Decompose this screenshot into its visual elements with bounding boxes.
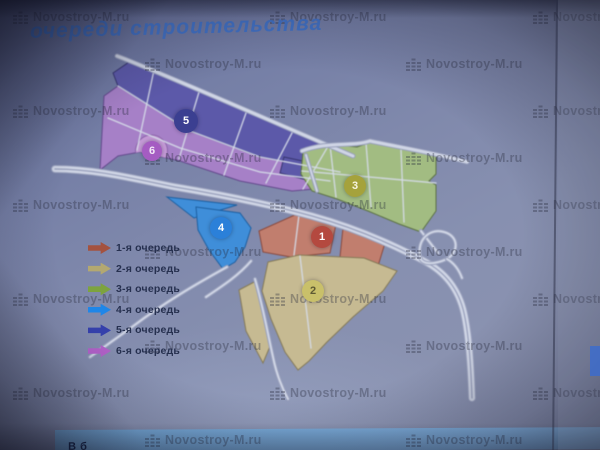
- legend-label: 5-я очередь: [116, 324, 180, 336]
- photo-of-screen: В б Novostroy-M.ruNovostroy-M.ruNovostro…: [0, 0, 600, 450]
- building-bars-icon: [406, 434, 422, 447]
- legend-item-2: 2-я очередь: [88, 263, 180, 275]
- phase-badge-3: 3: [344, 175, 366, 197]
- cutoff-text: В б: [68, 441, 87, 450]
- building-bars-icon: [406, 340, 422, 353]
- phase-arrow-icon: [88, 304, 111, 316]
- legend-item-6: 6-я очередь: [88, 345, 180, 357]
- watermark-text: Novostroy-M.ru: [290, 386, 387, 400]
- building-bars-icon: [270, 293, 286, 306]
- watermark: Novostroy-M.ru: [145, 57, 262, 71]
- phase-badge-5: 5: [174, 109, 198, 133]
- legend-item-1: 1-я очередь: [88, 242, 180, 254]
- watermark: Novostroy-M.ru: [270, 198, 387, 212]
- watermark: Novostroy-M.ru: [406, 339, 523, 353]
- building-bars-icon: [270, 387, 286, 400]
- building-bars-icon: [406, 152, 422, 165]
- phase-badge-1: 1: [311, 226, 333, 248]
- building-bars-icon: [145, 58, 161, 71]
- building-bars-icon: [533, 11, 549, 24]
- legend-item-5: 5-я очередь: [88, 324, 180, 336]
- building-bars-icon: [533, 293, 549, 306]
- watermark-text: Novostroy-M.ru: [426, 57, 523, 71]
- building-bars-icon: [13, 105, 29, 118]
- watermark: Novostroy-M.ru: [406, 245, 523, 259]
- watermark-text: Novostroy-M.ru: [290, 104, 387, 118]
- watermark-text: Novostroy-M.ru: [290, 198, 387, 212]
- legend: 1-я очередь2-я очередь3-я очередь4-я оче…: [88, 242, 180, 366]
- watermark-text: Novostroy-M.ru: [426, 151, 523, 165]
- watermark-text: Novostroy-M.ru: [33, 386, 130, 400]
- watermark-text: Novostroy-M.ru: [165, 433, 262, 447]
- legend-label: 1-я очередь: [116, 242, 180, 254]
- legend-label: 4-я очередь: [116, 304, 180, 316]
- watermark: Novostroy-M.ru: [406, 433, 523, 447]
- watermark: Novostroy-M.ru: [13, 386, 130, 400]
- watermark-text: Novostroy-M.ru: [165, 57, 262, 71]
- legend-label: 6-я очередь: [116, 345, 180, 357]
- watermark-text: Novostroy-M.ru: [426, 433, 523, 447]
- zone-phase-2: [262, 255, 397, 370]
- building-bars-icon: [13, 11, 29, 24]
- building-bars-icon: [406, 246, 422, 259]
- watermark-text: Novostroy-M.ru: [426, 245, 523, 259]
- watermark: Novostroy-M.ru: [406, 151, 523, 165]
- building-bars-icon: [533, 105, 549, 118]
- watermark-text: Novostroy-M.ru: [33, 104, 130, 118]
- phase-arrow-icon: [88, 242, 111, 254]
- watermark: Novostroy-M.ru: [270, 292, 387, 306]
- watermark: Novostroy-M.ru: [145, 433, 262, 447]
- building-bars-icon: [270, 105, 286, 118]
- building-bars-icon: [406, 58, 422, 71]
- phase-badge-6: 6: [142, 141, 162, 161]
- legend-item-4: 4-я очередь: [88, 304, 180, 316]
- phase-arrow-icon: [88, 324, 111, 336]
- watermark: Novostroy-M.ru: [270, 104, 387, 118]
- phase-arrow-icon: [88, 345, 111, 357]
- building-bars-icon: [533, 387, 549, 400]
- phase-badge-2: 2: [302, 280, 324, 302]
- building-bars-icon: [13, 387, 29, 400]
- watermark-text: Novostroy-M.ru: [165, 151, 262, 165]
- building-bars-icon: [13, 293, 29, 306]
- screen-edge-area: [558, 0, 600, 450]
- watermark-text: Novostroy-M.ru: [426, 339, 523, 353]
- phase-arrow-icon: [88, 283, 111, 295]
- watermark: Novostroy-M.ru: [406, 57, 523, 71]
- legend-item-3: 3-я очередь: [88, 283, 180, 295]
- phase-badge-4: 4: [210, 217, 232, 239]
- background-object: [590, 346, 600, 376]
- building-bars-icon: [533, 199, 549, 212]
- watermark: Novostroy-M.ru: [145, 151, 262, 165]
- watermark: Novostroy-M.ru: [13, 104, 130, 118]
- building-bars-icon: [13, 199, 29, 212]
- legend-label: 2-я очередь: [116, 263, 180, 275]
- watermark-text: Novostroy-M.ru: [33, 198, 130, 212]
- building-bars-icon: [145, 434, 161, 447]
- phase-arrow-icon: [88, 263, 111, 275]
- watermark: Novostroy-M.ru: [13, 198, 130, 212]
- legend-label: 3-я очередь: [116, 283, 180, 295]
- watermark: Novostroy-M.ru: [270, 386, 387, 400]
- building-bars-icon: [270, 199, 286, 212]
